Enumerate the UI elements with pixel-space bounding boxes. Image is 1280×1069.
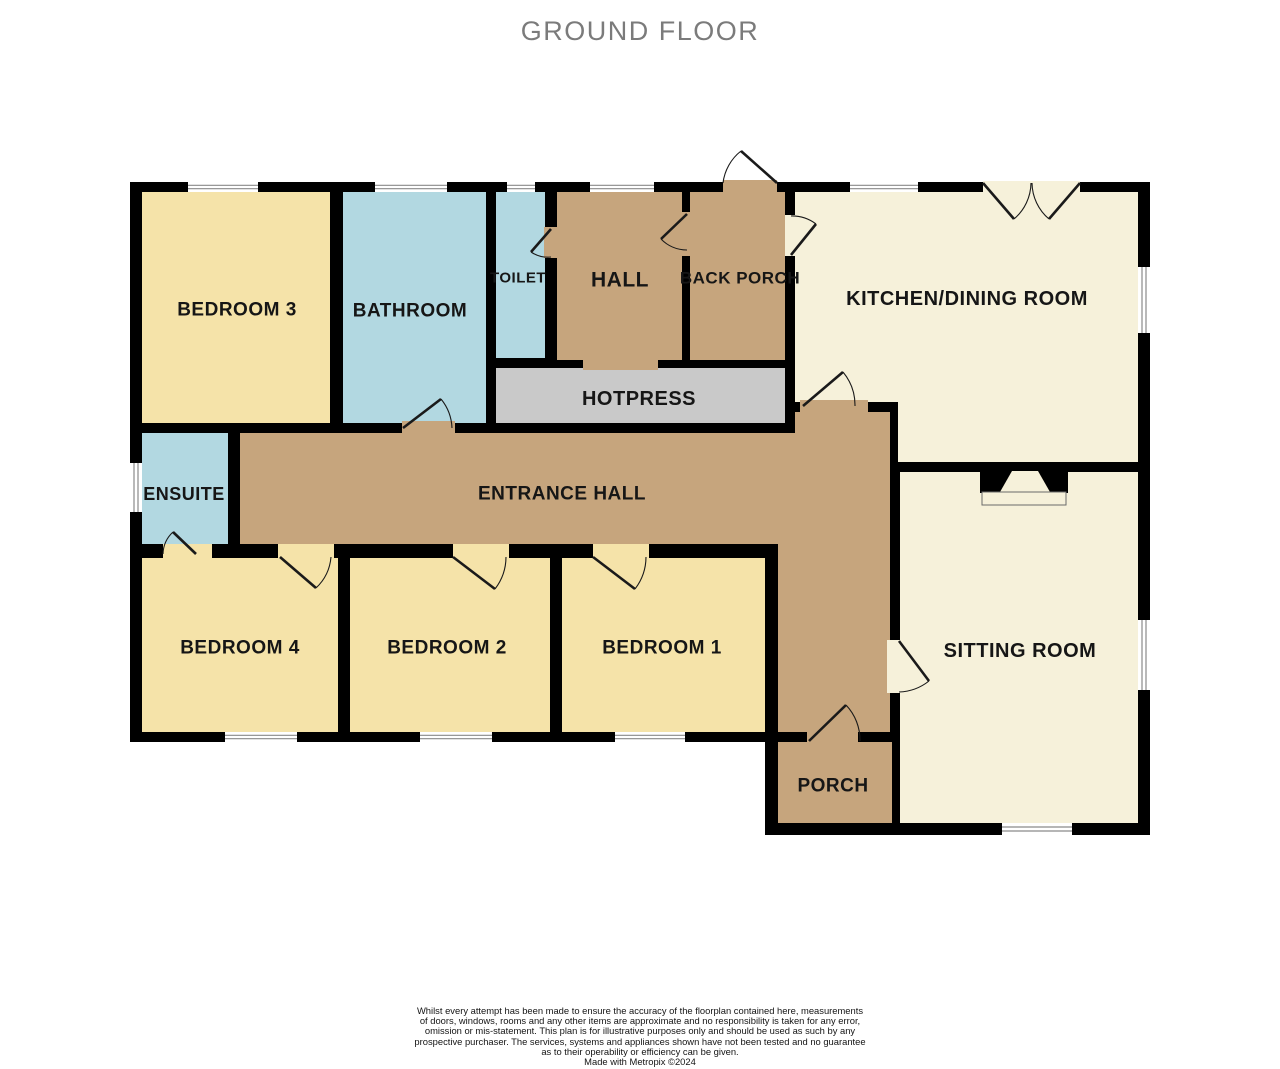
window xyxy=(1138,620,1150,690)
door-opening xyxy=(583,357,658,370)
door-opening xyxy=(723,180,777,193)
room-label-back-porch: BACK PORCH xyxy=(680,269,800,288)
room-label-bedroom-2: BEDROOM 2 xyxy=(387,638,507,659)
room-label-hotpress: HOTPRESS xyxy=(582,388,696,410)
door-opening xyxy=(800,400,868,414)
room-label-ensuite: ENSUITE xyxy=(143,484,225,504)
door-opening xyxy=(278,544,334,559)
window xyxy=(1002,823,1072,835)
window xyxy=(375,182,447,192)
door-opening xyxy=(887,640,902,693)
door-opening xyxy=(544,227,558,258)
back-porch-exterior-door-swing-arc xyxy=(723,151,741,183)
disclaimer-text: Whilst every attempt has been made to en… xyxy=(0,1006,1280,1067)
window xyxy=(507,182,535,192)
floorplan-drawing: BEDROOM 3BATHROOMTOILETHALLBACK PORCHKIT… xyxy=(0,0,1280,1069)
disclaimer-line: Made with Metropix ©2024 xyxy=(0,1057,1280,1067)
room-label-kitchen-dining-room: KITCHEN/DINING ROOM xyxy=(846,288,1088,310)
fireplace-hearth xyxy=(982,492,1066,505)
room-label-entrance-hall: ENTRANCE HALL xyxy=(478,484,646,505)
window xyxy=(850,182,918,192)
window xyxy=(590,182,654,192)
room-label-bedroom-3: BEDROOM 3 xyxy=(177,300,297,321)
door-opening xyxy=(593,544,649,559)
back-porch-exterior-door-leaf xyxy=(741,151,777,183)
floorplan-page: GROUND FLOOR BEDROOM 3BATHROOMTOILETHALL… xyxy=(0,0,1280,1069)
window xyxy=(615,732,685,742)
window xyxy=(1138,267,1150,333)
room-label-bedroom-4: BEDROOM 4 xyxy=(180,638,300,659)
door-opening xyxy=(983,181,1080,193)
window xyxy=(130,463,142,512)
door-opening xyxy=(453,544,509,559)
room-label-sitting-room: SITTING ROOM xyxy=(944,640,1097,662)
room-label-bedroom-1: BEDROOM 1 xyxy=(602,638,722,659)
room-label-toilet: TOILET xyxy=(490,270,546,287)
room-label-bathroom: BATHROOM xyxy=(353,301,467,322)
window xyxy=(188,182,258,192)
room-label-porch: PORCH xyxy=(797,776,868,797)
window xyxy=(420,732,492,742)
window xyxy=(225,732,297,742)
room-label-hall: HALL xyxy=(591,269,649,292)
